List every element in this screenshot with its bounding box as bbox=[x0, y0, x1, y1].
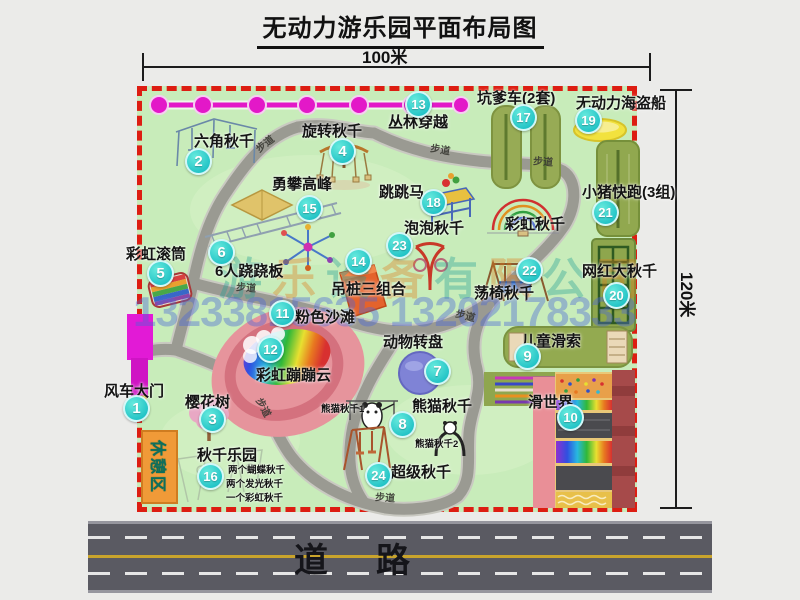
rest-area: 休憩区 bbox=[141, 430, 178, 504]
dimension-height-label: 120米 bbox=[676, 272, 701, 317]
rest-area-label: 休憩区 bbox=[148, 440, 172, 494]
park-area bbox=[137, 86, 637, 512]
road: 道路 bbox=[88, 521, 712, 593]
dimension-width-label: 100米 bbox=[362, 43, 407, 68]
road-label: 道路 bbox=[64, 524, 688, 590]
park-plan-screenshot: 无动力游乐园平面布局图 100米 120米 bbox=[0, 0, 800, 600]
